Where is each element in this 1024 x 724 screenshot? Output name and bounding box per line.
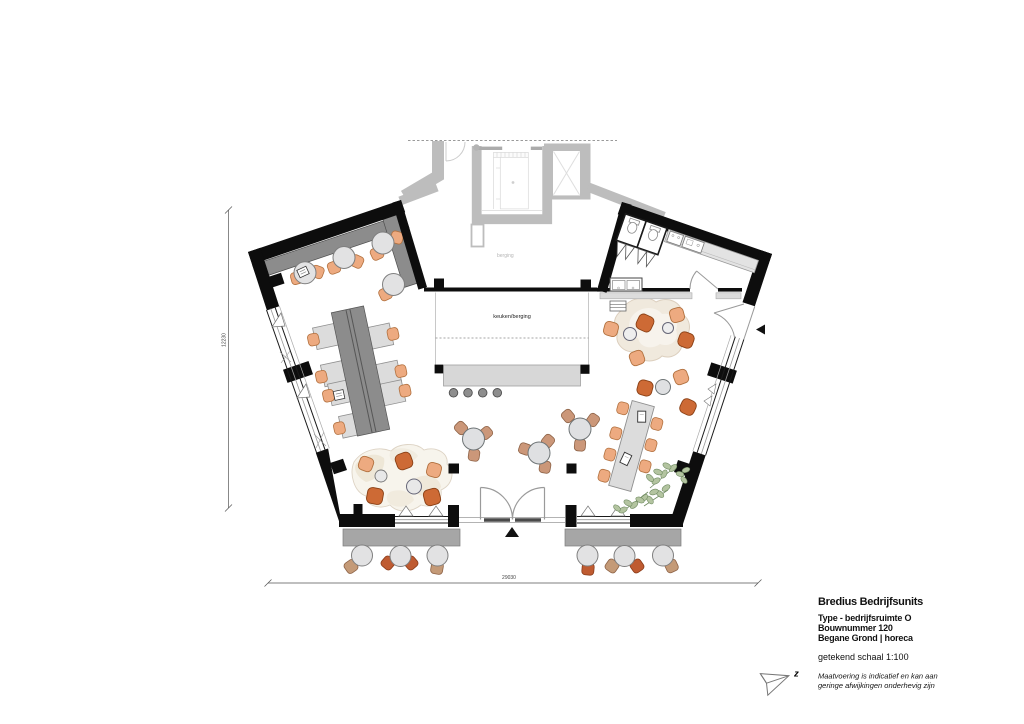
svg-text:z: z bbox=[793, 669, 799, 680]
svg-text:berging: berging bbox=[497, 253, 514, 259]
svg-text:Begane Grond | horeca: Begane Grond | horeca bbox=[818, 633, 914, 643]
svg-text:12230: 12230 bbox=[222, 333, 228, 347]
svg-text:Bredius Bedrijfsunits: Bredius Bedrijfsunits bbox=[818, 596, 923, 608]
svg-text:geringe afwijkingen onderhevig: geringe afwijkingen onderhevig zijn bbox=[818, 681, 935, 690]
svg-text:29030: 29030 bbox=[502, 575, 516, 581]
svg-text:Type - bedrijfsruimte O: Type - bedrijfsruimte O bbox=[818, 613, 911, 623]
svg-text:Maatvoering is indicatief en k: Maatvoering is indicatief en kan aan bbox=[818, 672, 938, 681]
svg-text:keuken/berging: keuken/berging bbox=[493, 314, 531, 320]
svg-text:Bouwnummer 120: Bouwnummer 120 bbox=[818, 623, 893, 633]
svg-text:getekend schaal 1:100: getekend schaal 1:100 bbox=[818, 652, 909, 662]
